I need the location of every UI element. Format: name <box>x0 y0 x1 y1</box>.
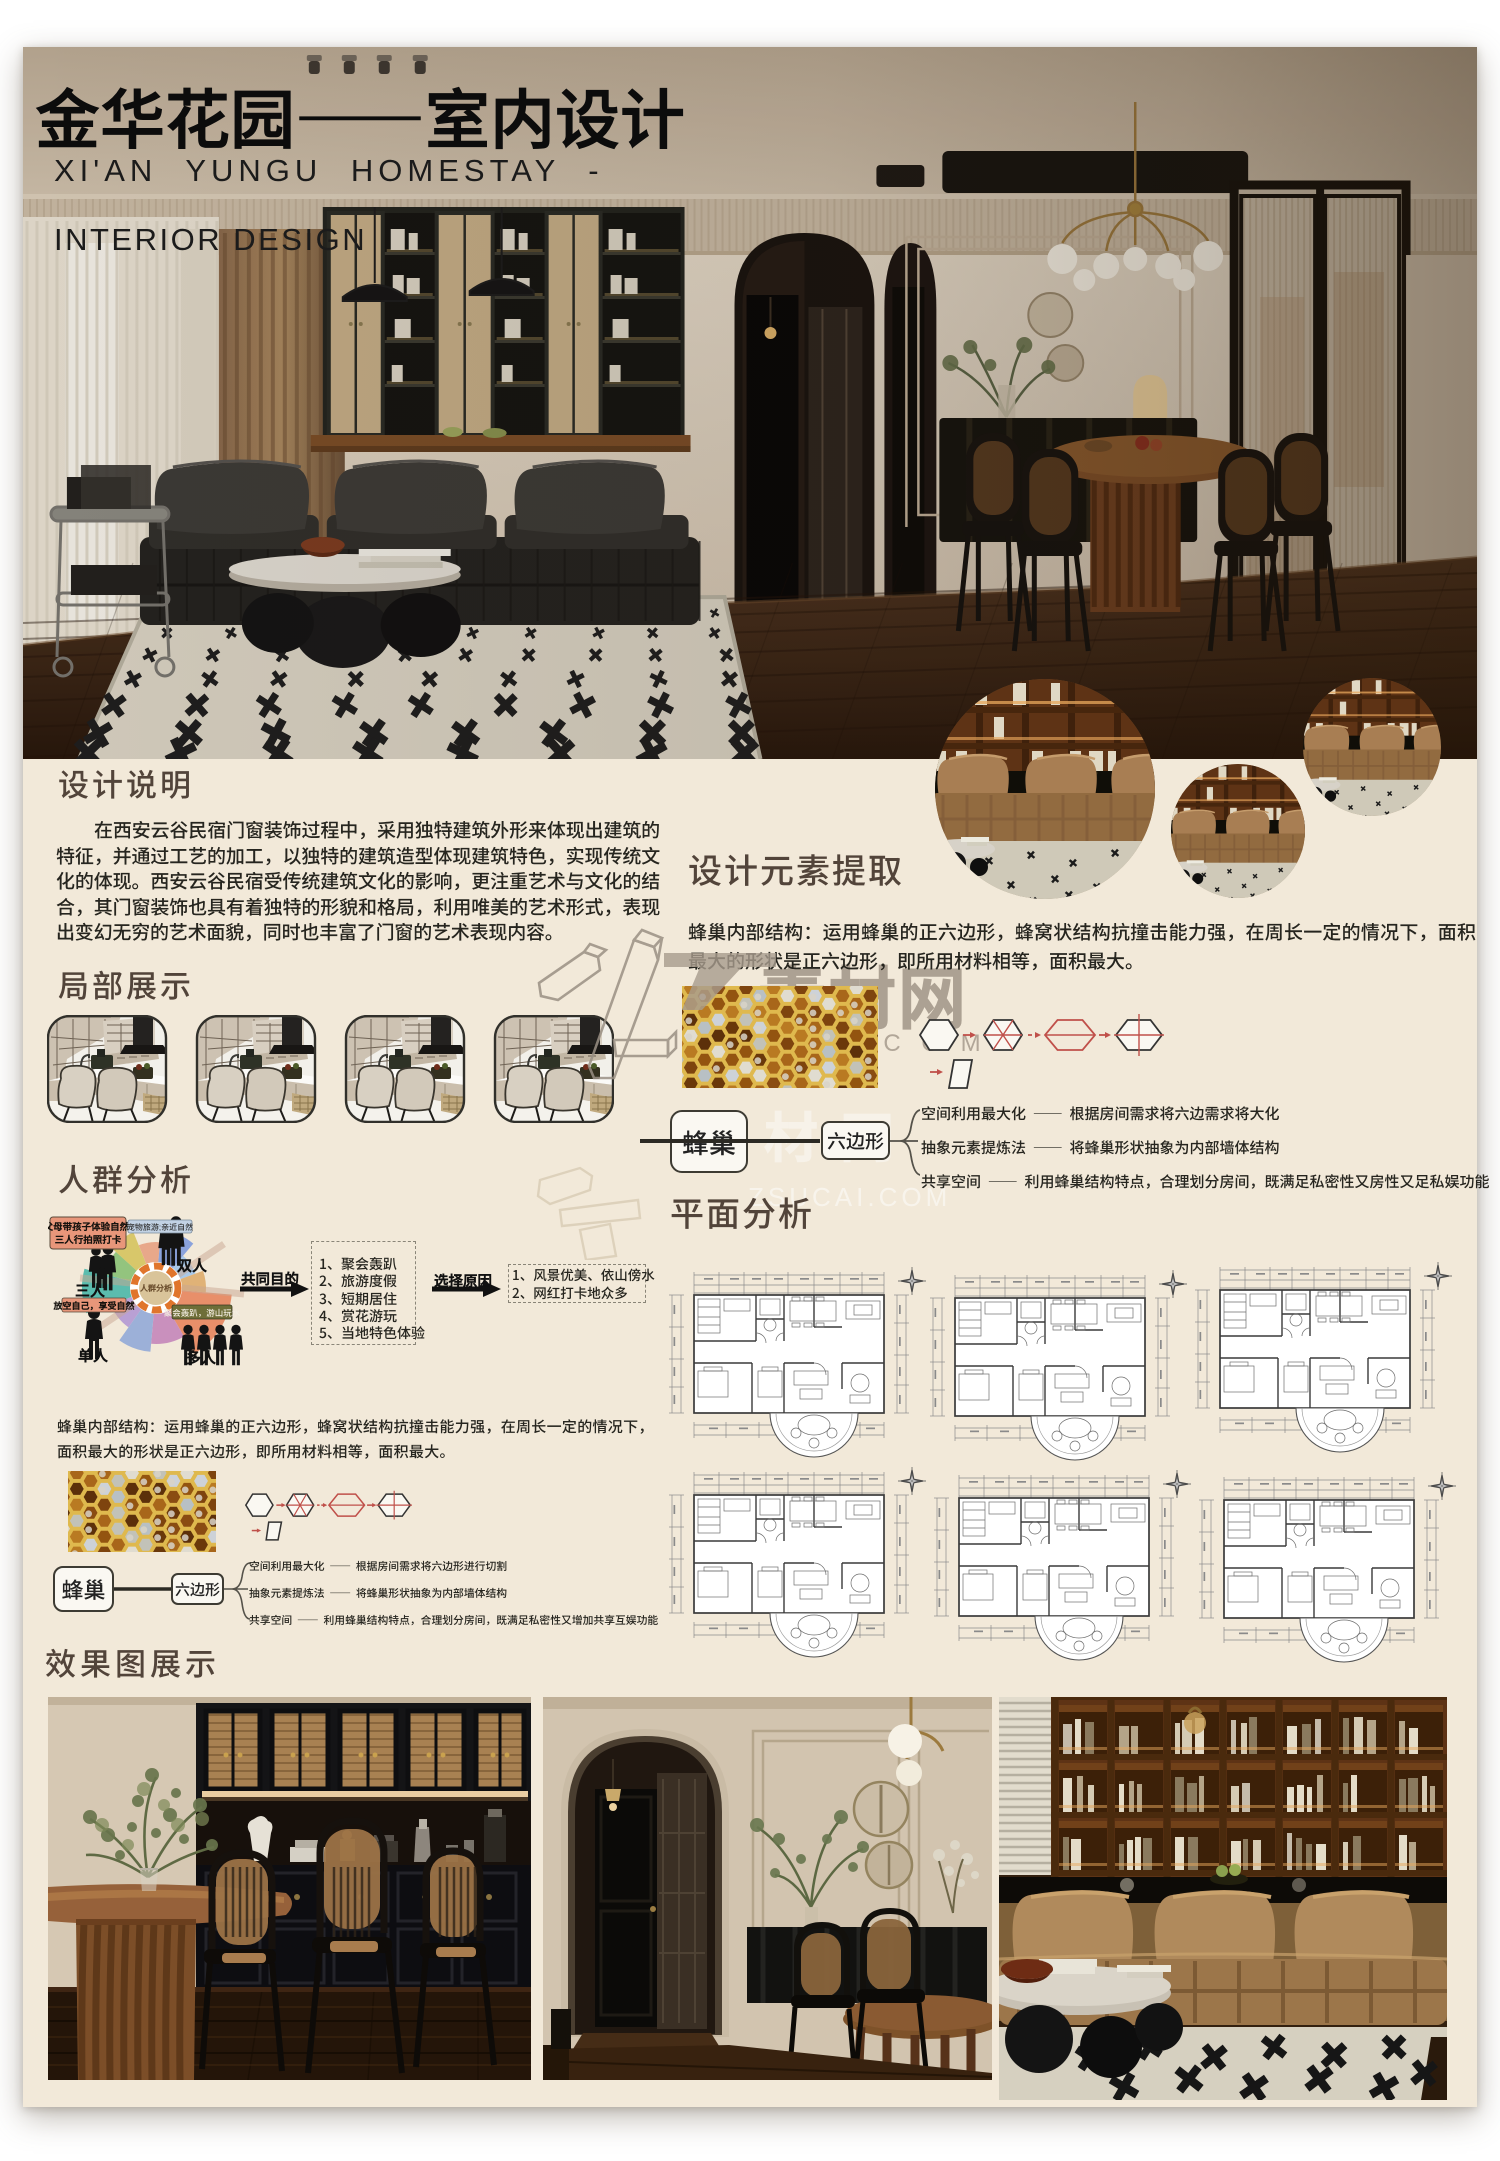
svg-text:单人: 单人 <box>78 1345 109 1366</box>
svg-text:聚会轰趴，游山玩水: 聚会轰趴，游山玩水 <box>164 1307 241 1319</box>
svg-text:宠物旅游;亲近自然: 宠物旅游;亲近自然 <box>127 1222 193 1233</box>
svg-text:三人: 三人 <box>75 1280 106 1301</box>
svg-text:父母带孩子体验自然;: 父母带孩子体验自然; <box>48 1219 132 1233</box>
svg-text:人群分析: 人群分析 <box>139 1283 172 1294</box>
svg-text:三人行拍照打卡: 三人行拍照打卡 <box>55 1232 122 1246</box>
svg-text:多人: 多人 <box>186 1347 217 1368</box>
svg-text:双人: 双人 <box>176 1255 208 1276</box>
